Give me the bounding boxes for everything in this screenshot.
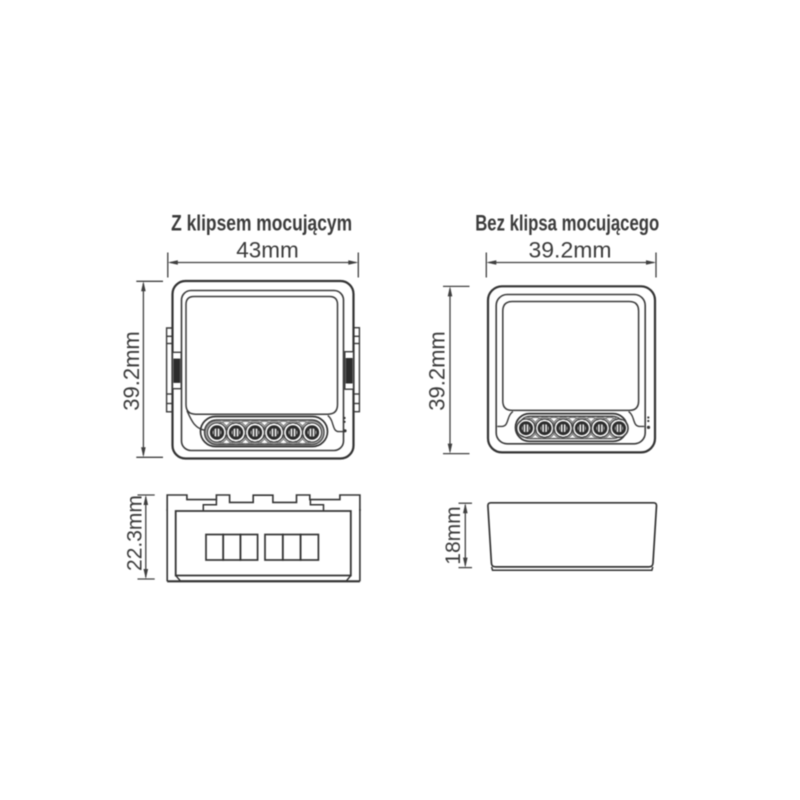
svg-text:Bez klipsa mocującego: Bez klipsa mocującego <box>475 211 659 236</box>
svg-text:Z klipsem mocującym: Z klipsem mocującym <box>171 211 352 236</box>
svg-text:43mm: 43mm <box>236 238 299 263</box>
svg-text:39.2mm: 39.2mm <box>529 238 612 263</box>
svg-text:39.2mm: 39.2mm <box>119 331 144 410</box>
svg-text:22.3mm: 22.3mm <box>124 495 147 571</box>
svg-text:18mm: 18mm <box>442 506 465 564</box>
svg-text:39.2mm: 39.2mm <box>425 331 450 410</box>
